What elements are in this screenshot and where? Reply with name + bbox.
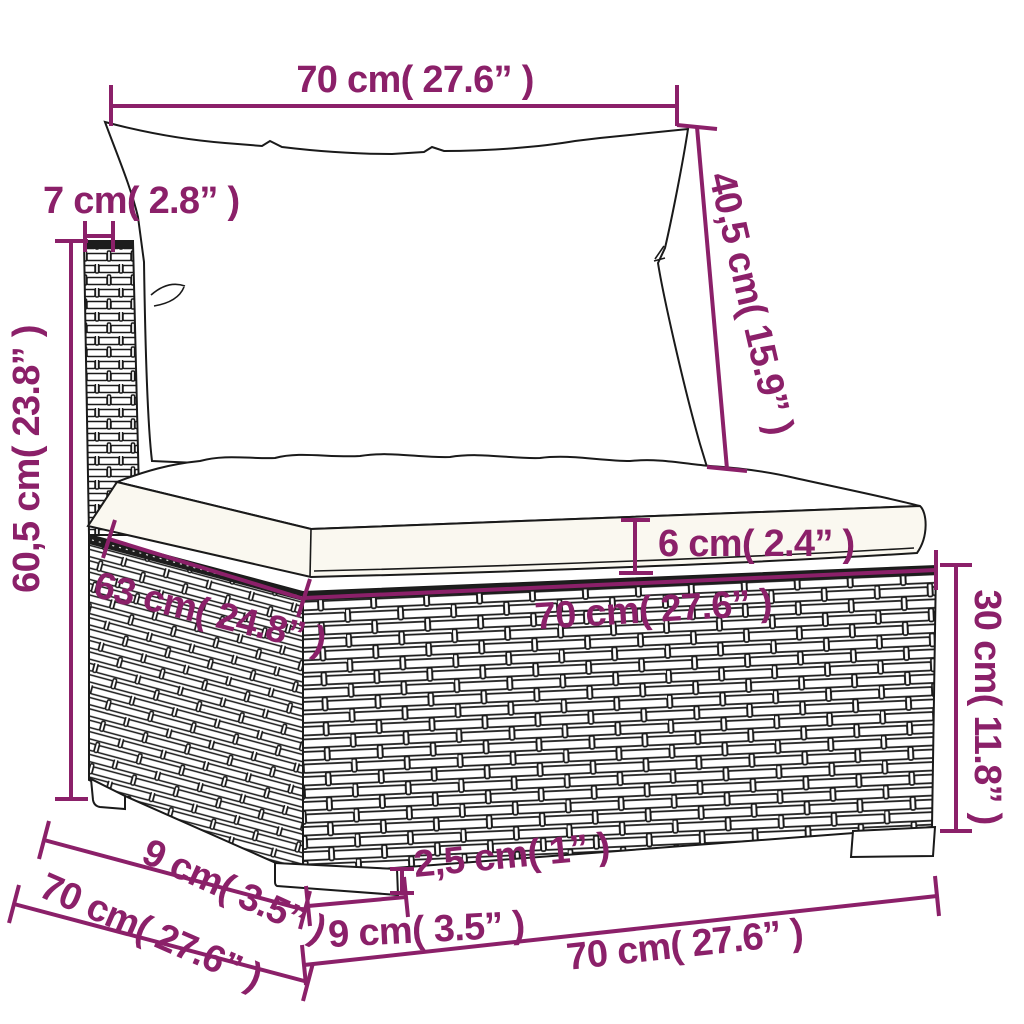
svg-text:60,5 cm( 23.8” ): 60,5 cm( 23.8” ) <box>6 325 48 593</box>
svg-text:6 cm( 2.4” ): 6 cm( 2.4” ) <box>658 523 854 565</box>
svg-text:7 cm( 2.8” ): 7 cm( 2.8” ) <box>43 180 239 222</box>
svg-text:30 cm( 11.8” ): 30 cm( 11.8” ) <box>966 589 1008 824</box>
svg-text:70 cm( 27.6” ): 70 cm( 27.6” ) <box>296 59 533 101</box>
